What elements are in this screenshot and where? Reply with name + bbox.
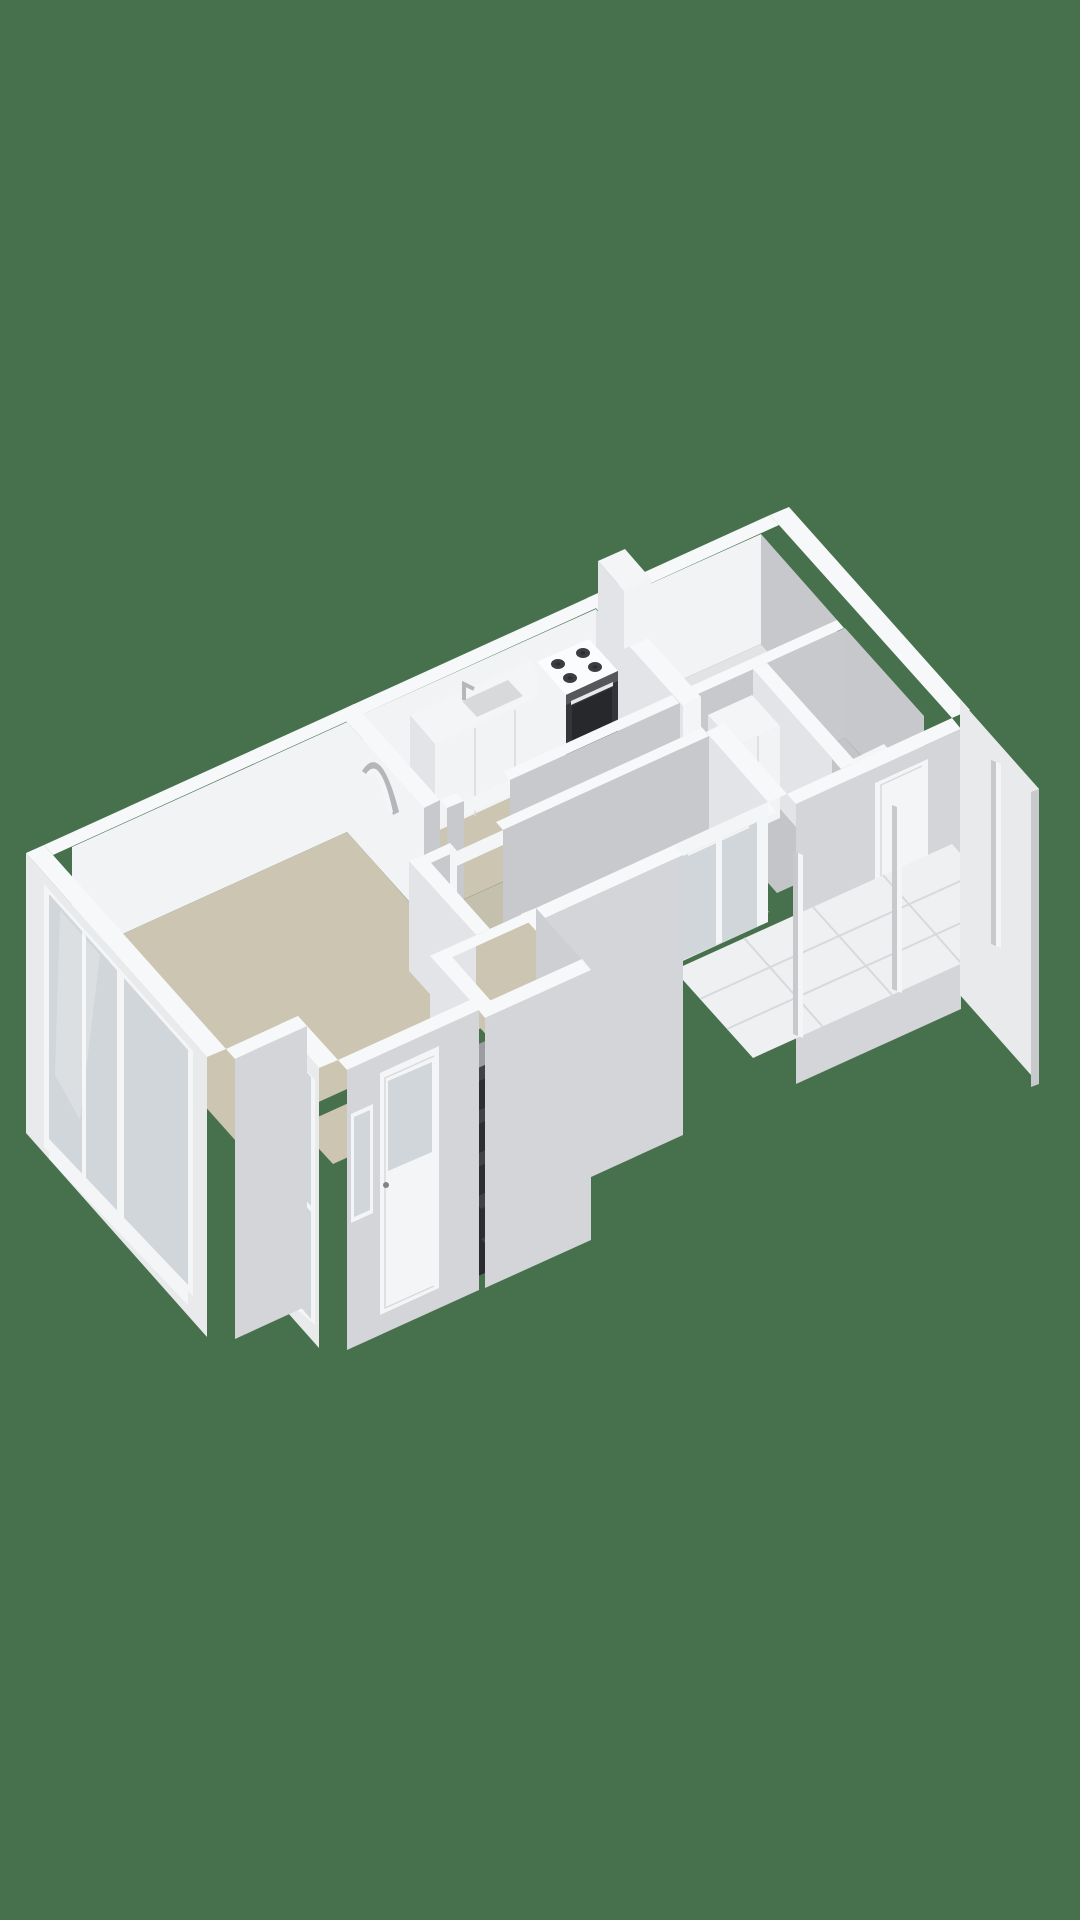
front-door	[380, 1046, 439, 1315]
post-front	[897, 807, 902, 993]
burner-center	[556, 662, 561, 666]
floorplan-render	[0, 0, 1080, 1920]
post-side	[991, 760, 996, 946]
wall-face	[235, 1026, 307, 1339]
burner-center	[568, 676, 573, 680]
burner-center	[581, 651, 586, 655]
door-handle	[383, 1182, 389, 1188]
burner-center	[593, 665, 598, 669]
window-glass	[354, 1110, 370, 1217]
slider-mullion	[716, 837, 722, 945]
stair-front-wall-face	[485, 970, 591, 1288]
floorplan-svg	[0, 0, 1080, 1920]
south-exterior-wall	[226, 1016, 307, 1339]
post-side	[793, 851, 798, 1036]
parapet-end	[1031, 789, 1039, 1087]
box-front	[624, 579, 651, 649]
railing-post	[892, 805, 902, 993]
railing-post	[793, 851, 803, 1038]
entry-side-window	[351, 1104, 373, 1223]
post-front	[798, 853, 803, 1038]
window-mullion	[117, 970, 124, 1223]
post-front	[996, 762, 1001, 948]
post-side	[892, 805, 897, 991]
entrance-wall	[338, 1000, 479, 1350]
railing-post	[991, 760, 1001, 948]
door-window	[388, 1062, 432, 1171]
